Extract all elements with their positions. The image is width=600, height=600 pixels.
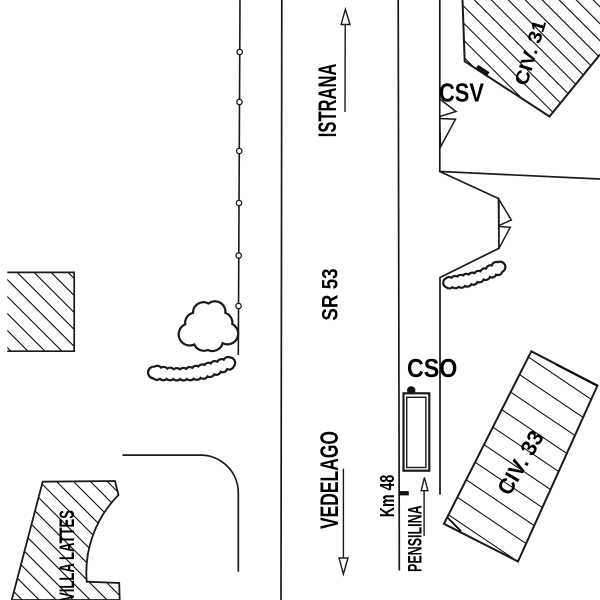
svg-text:Km 48: Km 48: [377, 475, 399, 518]
svg-text:VILLA LATTES: VILLA LATTES: [56, 510, 79, 600]
svg-text:CSV: CSV: [439, 78, 485, 108]
svg-text:PENSILINA: PENSILINA: [406, 505, 427, 572]
svg-text:SR 53: SR 53: [318, 268, 343, 320]
svg-text:VEDELAGO: VEDELAGO: [316, 431, 344, 529]
svg-text:ISTRANA: ISTRANA: [314, 64, 342, 138]
svg-text:CSO: CSO: [407, 353, 457, 383]
